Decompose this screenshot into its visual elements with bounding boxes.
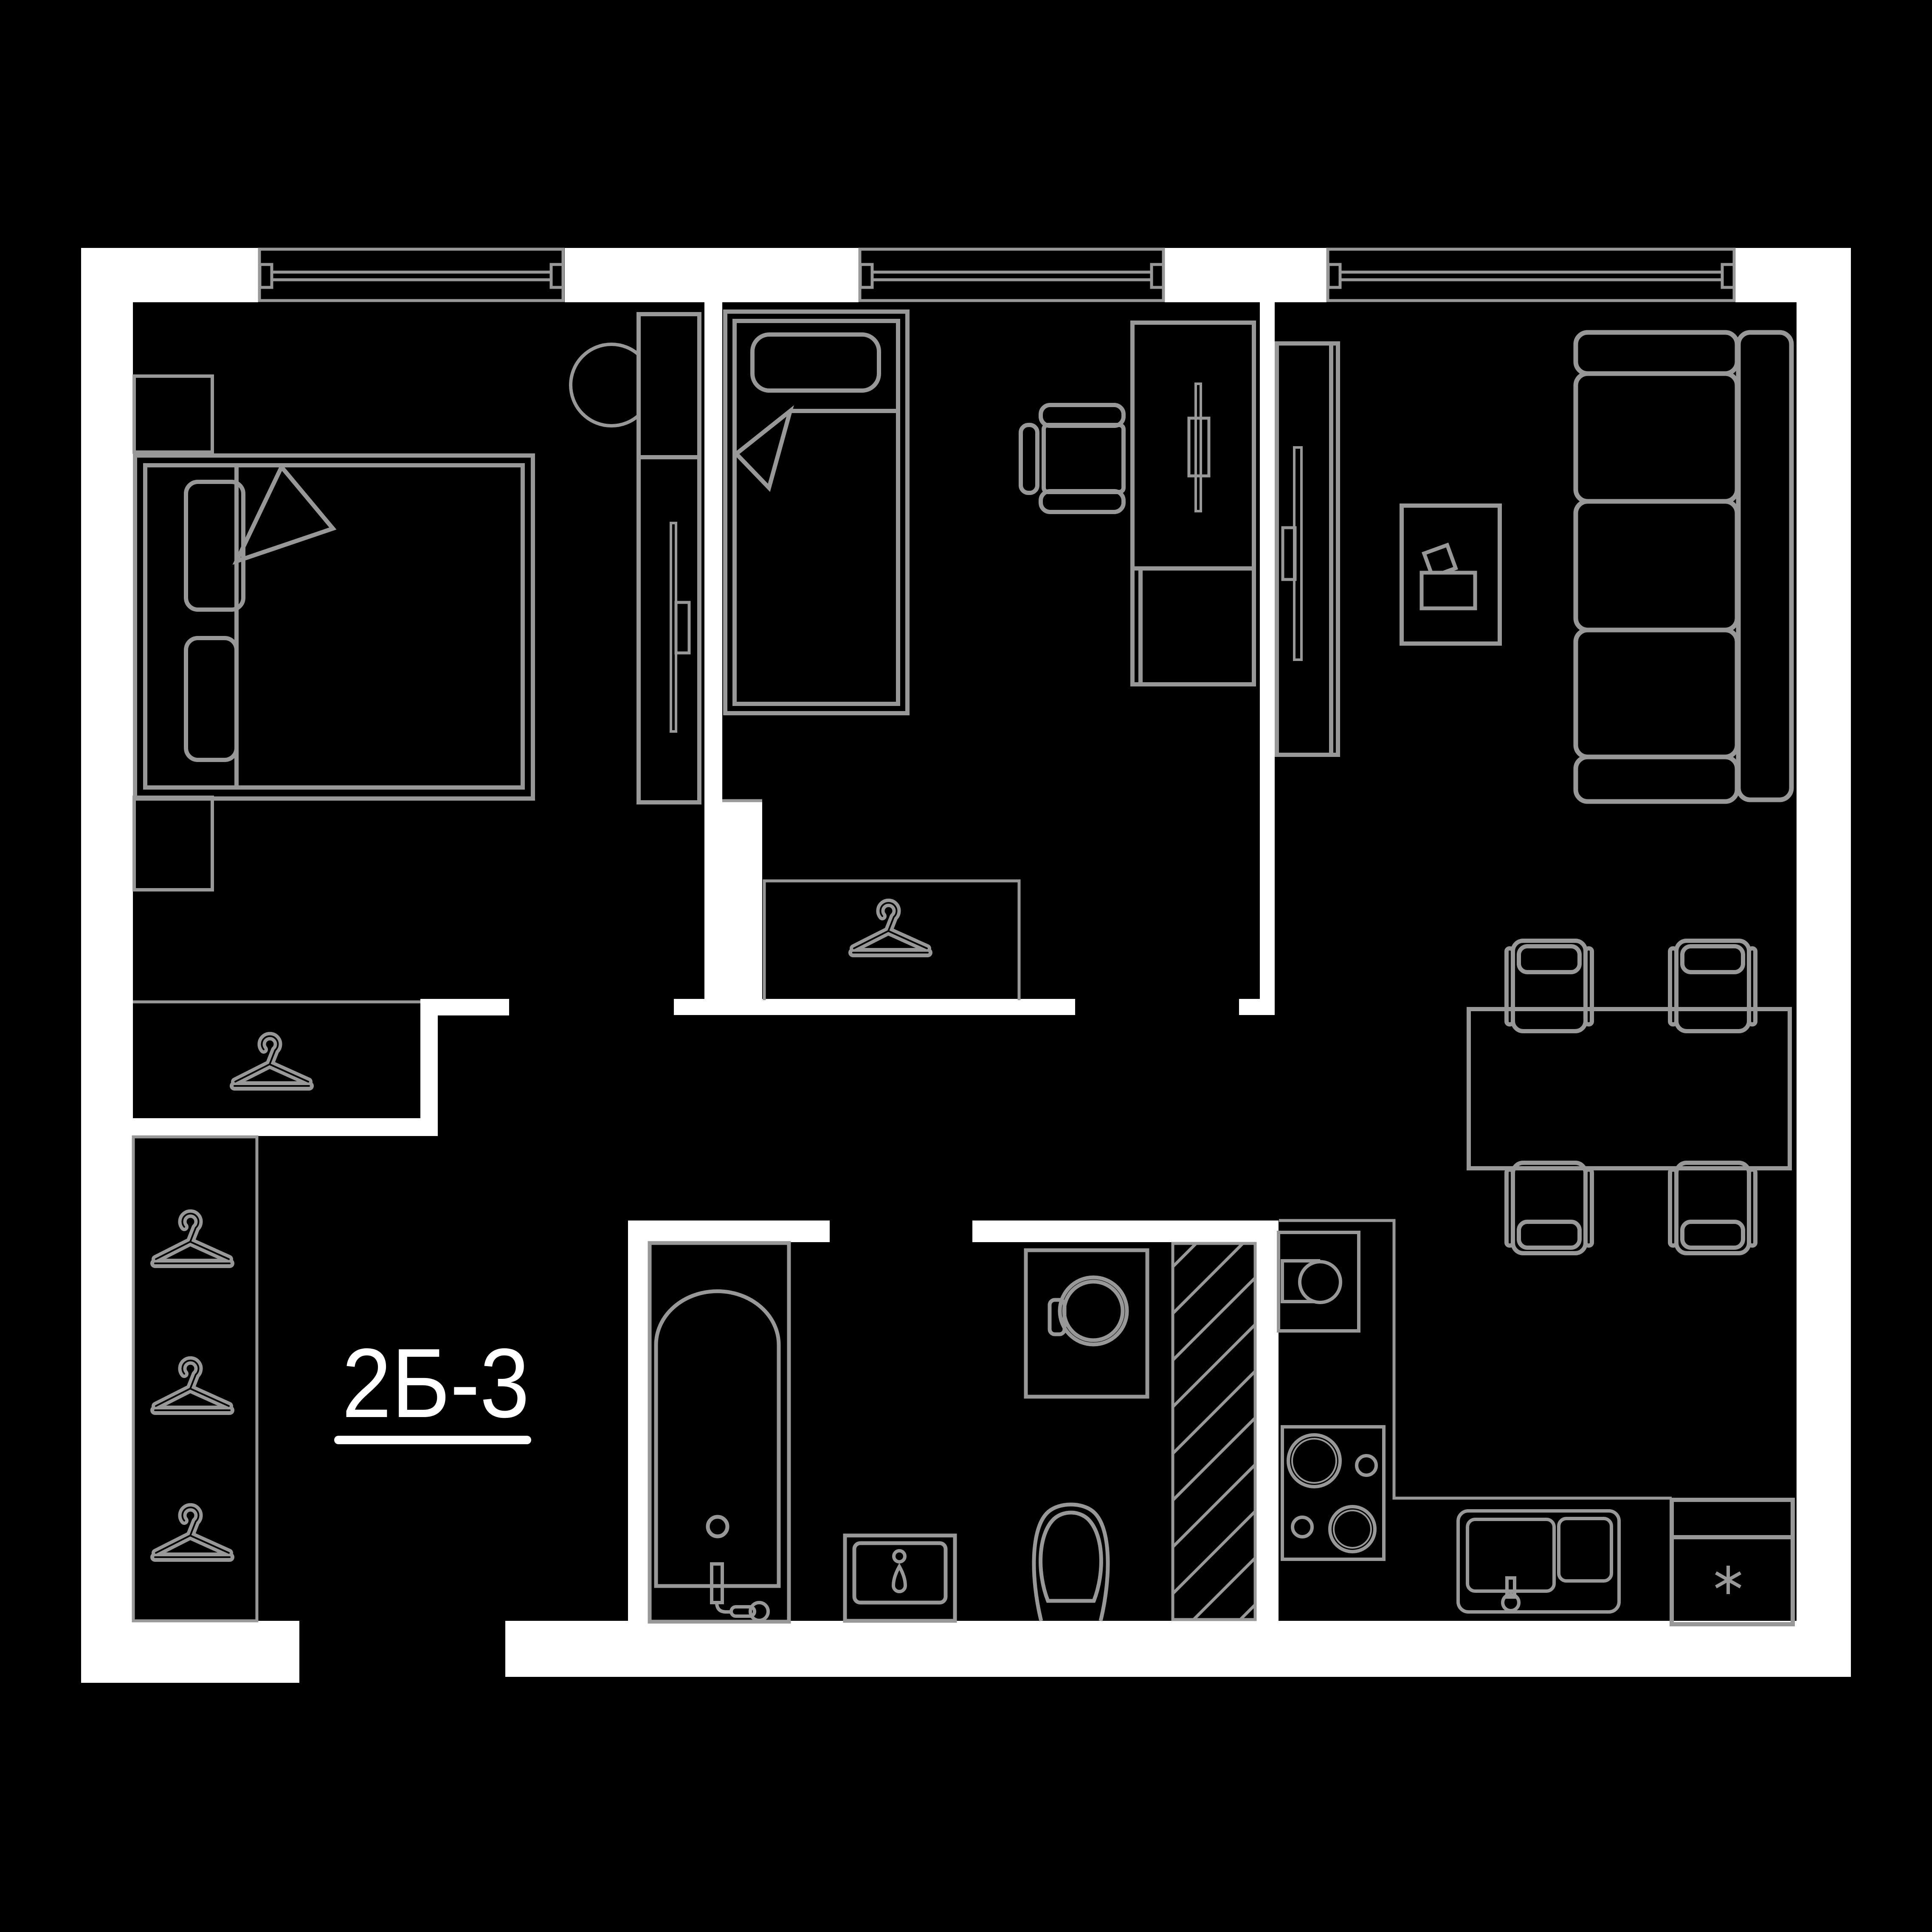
svg-text:2Б-3: 2Б-3 (342, 1328, 529, 1438)
